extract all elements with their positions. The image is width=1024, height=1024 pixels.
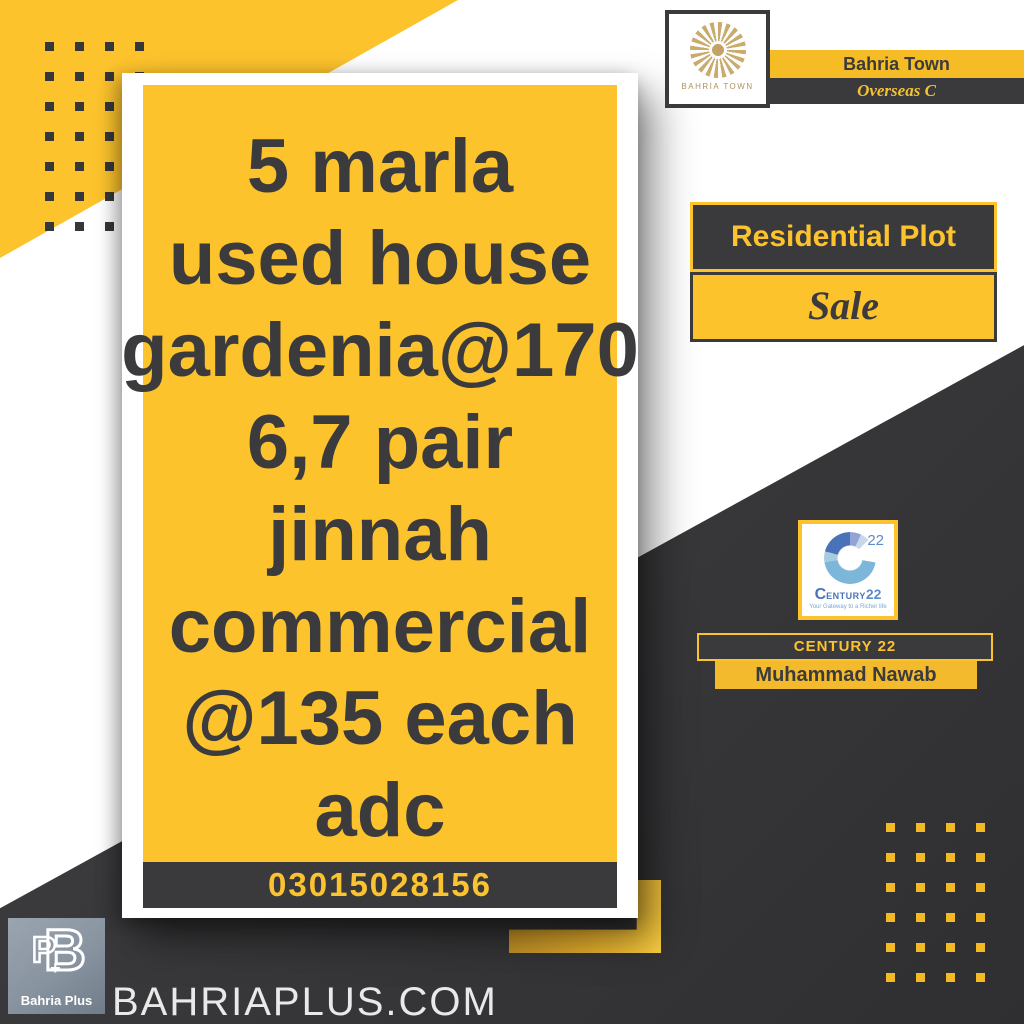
bahria-town-name-bar: Bahria Town: [769, 50, 1024, 78]
bahria-plus-logo: B P + Bahria Plus: [8, 918, 105, 1014]
century22-wordmark-c: C: [815, 586, 827, 603]
bahria-town-medallion-icon: [690, 22, 746, 78]
listing-description: 5 marla used house gardenia@170 6,7 pair…: [110, 121, 650, 857]
century22-wordmark-mid: ENTURY: [826, 591, 866, 601]
agency-name-bar: CENTURY 22: [697, 633, 993, 661]
bahria-town-logo-caption: BAHRIA TOWN: [669, 82, 766, 91]
listing-card: 5 marla used house gardenia@170 6,7 pair…: [122, 73, 638, 918]
century22-tagline: Your Gateway to a Richer life: [802, 604, 894, 610]
dot-grid-bottom-right: [886, 823, 985, 982]
listing-status-badge: Sale: [690, 272, 997, 342]
bahria-plus-monogram-icon: B P +: [8, 918, 105, 992]
listing-category-badge: Residential Plot: [690, 202, 997, 272]
agent-name-bar: Muhammad Nawab: [715, 661, 977, 689]
century22-wordmark: CENTURY22: [802, 586, 894, 604]
bahria-plus-label: Bahria Plus: [8, 993, 105, 1008]
bahria-town-logo-box: BAHRIA TOWN: [665, 10, 770, 108]
monogram-plus: +: [50, 958, 61, 979]
century22-logo-number: 22: [867, 532, 884, 549]
phone-number-bar: 03015028156: [143, 862, 617, 908]
century22-logo-box: 22 CENTURY22 Your Gateway to a Richer li…: [798, 520, 898, 620]
listing-card-body: 5 marla used house gardenia@170 6,7 pair…: [143, 85, 617, 862]
century22-wordmark-num: 22: [866, 586, 882, 602]
bahria-town-phase-bar: Overseas C: [769, 78, 1024, 104]
poster-canvas: 5 marla used house gardenia@170 6,7 pair…: [0, 0, 1024, 1024]
website-url: BAHRIAPLUS.COM: [112, 980, 498, 1024]
